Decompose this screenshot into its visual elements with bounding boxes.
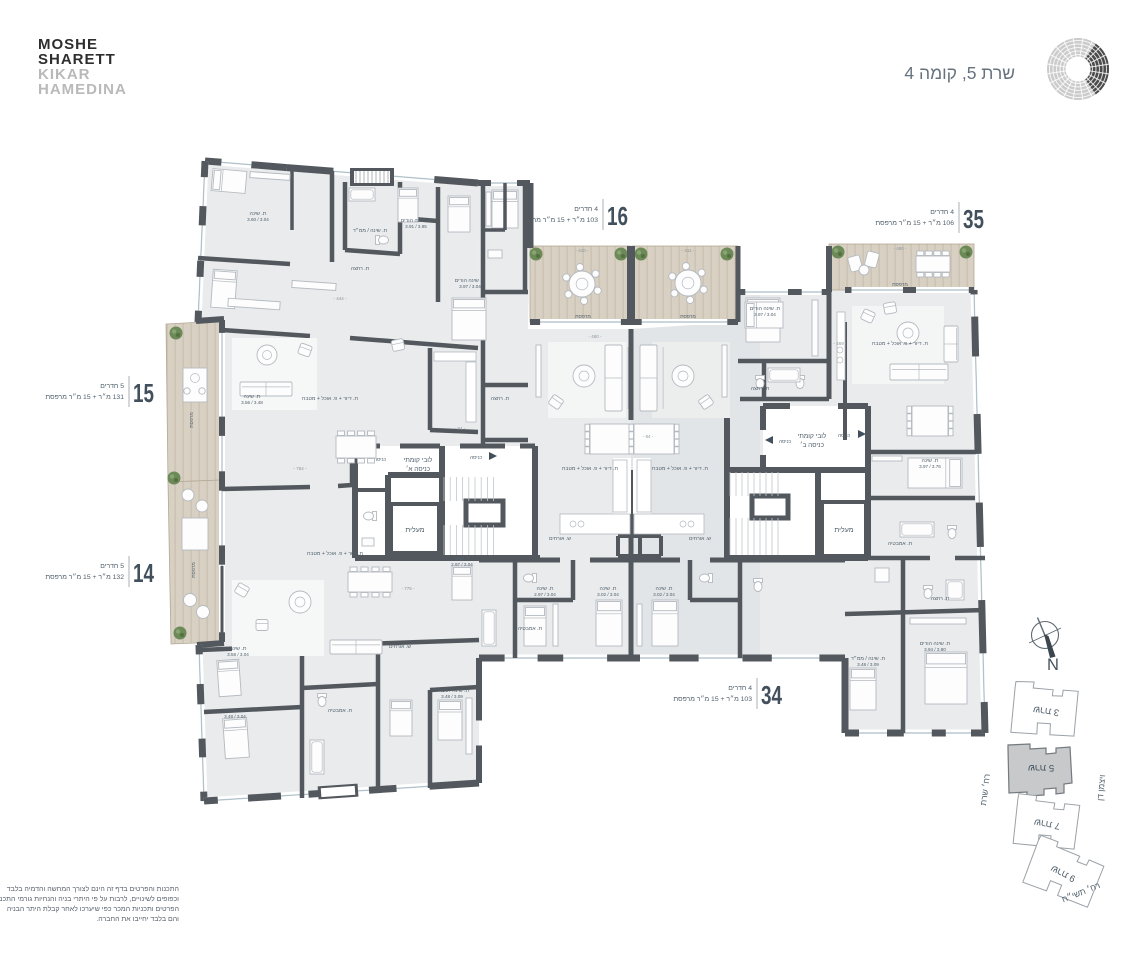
svg-text:- 480 -: - 480 -: [893, 246, 907, 251]
svg-text:3.97 / 3.04: 3.97 / 3.04: [754, 312, 776, 317]
svg-text:3.48 / 3.09: 3.48 / 3.09: [441, 694, 463, 699]
svg-text:ת. דיור + פ. אוכל + מטבח: ת. דיור + פ. אוכל + מטבח: [307, 550, 364, 557]
svg-text:ת. רחצה: ת. רחצה: [491, 396, 510, 402]
svg-text:מעלית: מעלית: [834, 526, 853, 534]
svg-text:ת. דיור + פ. אוכל + מטבח: ת. דיור + פ. אוכל + מטבח: [302, 395, 359, 402]
svg-text:132 מ״ר + 15 מ״ר מרפסת: 132 מ״ר + 15 מ״ר מרפסת: [46, 574, 125, 581]
svg-text:3.02 / 3.04: 3.02 / 3.04: [597, 592, 619, 597]
svg-text:- 84 -: - 84 -: [455, 426, 466, 431]
svg-text:לובי קומתי: לובי קומתי: [798, 432, 827, 440]
svg-text:מרפסת: מרפסת: [189, 412, 195, 428]
svg-text:ת. דיור + פ. אוכל + מטבח: ת. דיור + פ. אוכל + מטבח: [872, 340, 929, 347]
svg-text:ש. אורחים: ש. אורחים: [689, 536, 711, 542]
svg-text:ש. אורחים: ש. אורחים: [389, 644, 411, 650]
svg-text:ת. אמבטיה: ת. אמבטיה: [518, 626, 543, 632]
svg-text:- 444 -: - 444 -: [333, 296, 347, 301]
svg-text:4 חדרים: 4 חדרים: [728, 685, 752, 692]
svg-text:3.48 / 3.09: 3.48 / 3.09: [857, 662, 879, 667]
svg-text:5 חדרים: 5 חדרים: [100, 563, 124, 570]
svg-text:הפרטים ותכניות המכר כפי שיערכו: הפרטים ותכניות המכר כפי שיערכו לאחר קבלת…: [7, 905, 179, 913]
svg-text:2.97 / 3.04: 2.97 / 3.04: [534, 592, 556, 597]
svg-text:שרת 5: שרת 5: [1028, 762, 1054, 773]
svg-text:ת. דיור + פ. אוכל + מטבח: ת. דיור + פ. אוכל + מטבח: [562, 465, 619, 472]
svg-text:3.94 / 3.80: 3.94 / 3.80: [924, 647, 946, 652]
svg-text:4 חדרים: 4 חדרים: [574, 206, 598, 213]
svg-text:ת. אמבטיה: ת. אמבטיה: [328, 708, 353, 714]
svg-text:- 94 -: - 94 -: [643, 434, 654, 439]
svg-text:ת. שינה / ממ״ד: ת. שינה / ממ״ד: [851, 655, 886, 662]
svg-text:16: 16: [607, 201, 628, 231]
svg-text:HAMEDINA: HAMEDINA: [38, 81, 127, 98]
svg-text:3.91 / 3.95: 3.91 / 3.95: [405, 224, 427, 229]
svg-text:לובי קומתי: לובי קומתי: [404, 456, 433, 464]
svg-text:ת. דיור + פ. אוכל + מטבח: ת. דיור + פ. אוכל + מטבח: [652, 465, 709, 472]
svg-text:106 מ״ר + 15 מ״ר מרפסת: 106 מ״ר + 15 מ״ר מרפסת: [876, 220, 955, 227]
svg-text:התכנות והפרטים בדף זה הינם לצו: התכנות והפרטים בדף זה הינם לצורך המחשה ו…: [7, 885, 179, 893]
svg-text:3.60 / 3.04: 3.60 / 3.04: [247, 217, 269, 222]
svg-text:3.97 / 3.04: 3.97 / 3.04: [459, 284, 481, 289]
svg-text:שרת 5, קומה 4: שרת 5, קומה 4: [904, 63, 1015, 83]
svg-text:ת. שינה / ממ״ד: ת. שינה / ממ״ד: [435, 687, 470, 694]
svg-text:N: N: [1047, 656, 1059, 674]
svg-text:3.48 / 3.04: 3.48 / 3.04: [224, 714, 246, 719]
svg-text:- 411 -: - 411 -: [682, 248, 695, 253]
svg-text:- 764 -: - 764 -: [293, 466, 307, 471]
svg-text:15: 15: [133, 378, 154, 408]
svg-text:וכפופים לשינויים, לרבות על פי: וכפופים לשינויים, לרבות על פי היתרי בניה…: [0, 895, 179, 903]
svg-text:מעלית: מעלית: [405, 526, 424, 534]
svg-text:כניסה א׳: כניסה א׳: [406, 466, 431, 473]
svg-text:- 469 -: - 469 -: [833, 341, 847, 346]
svg-text:כניסה ב׳: כניסה ב׳: [800, 442, 825, 449]
svg-text:3.56 / 3.48: 3.56 / 3.48: [241, 400, 263, 405]
svg-text:כניסה: כניסה: [779, 439, 792, 445]
svg-text:3.58 / 3.04: 3.58 / 3.04: [227, 652, 249, 657]
svg-text:34: 34: [761, 680, 782, 710]
svg-text:והם בלבד יחייבו את החברה.: והם בלבד יחייבו את החברה.: [96, 915, 179, 923]
svg-text:מרפסת: מרפסת: [191, 562, 197, 578]
svg-text:103 מ״ר + 15 מ״ר מרפסת: 103 מ״ר + 15 מ״ר מרפסת: [674, 696, 753, 703]
svg-text:ש. אורחים: ש. אורחים: [549, 536, 571, 542]
svg-text:ת. שינה / ממ״ד: ת. שינה / ממ״ד: [353, 227, 388, 234]
svg-text:131 מ״ר + 15 מ״ר מרפסת: 131 מ״ר + 15 מ״ר מרפסת: [46, 394, 125, 401]
svg-text:5 חדרים: 5 חדרים: [100, 383, 124, 390]
svg-text:35: 35: [963, 204, 984, 234]
svg-text:ת. אמבטיה: ת. אמבטיה: [888, 541, 913, 547]
svg-text:ת. רחצה: ת. רחצה: [351, 266, 370, 272]
svg-text:4 חדרים: 4 חדרים: [930, 209, 954, 216]
svg-text:כניסה: כניסה: [470, 455, 483, 461]
svg-text:14: 14: [133, 558, 154, 588]
svg-text:2.97 / 3.04: 2.97 / 3.04: [451, 562, 473, 567]
svg-text:ת. רחצה: ת. רחצה: [751, 386, 770, 392]
svg-text:- 410 -: - 410 -: [575, 248, 589, 253]
svg-text:3.97 / 3.76: 3.97 / 3.76: [919, 464, 941, 469]
svg-text:- 775 -: - 775 -: [401, 586, 415, 591]
svg-text:- 460 -: - 460 -: [588, 334, 602, 339]
svg-text:ת. רחצה: ת. רחצה: [931, 596, 950, 602]
svg-text:3.02 / 3.04: 3.02 / 3.04: [653, 592, 675, 597]
